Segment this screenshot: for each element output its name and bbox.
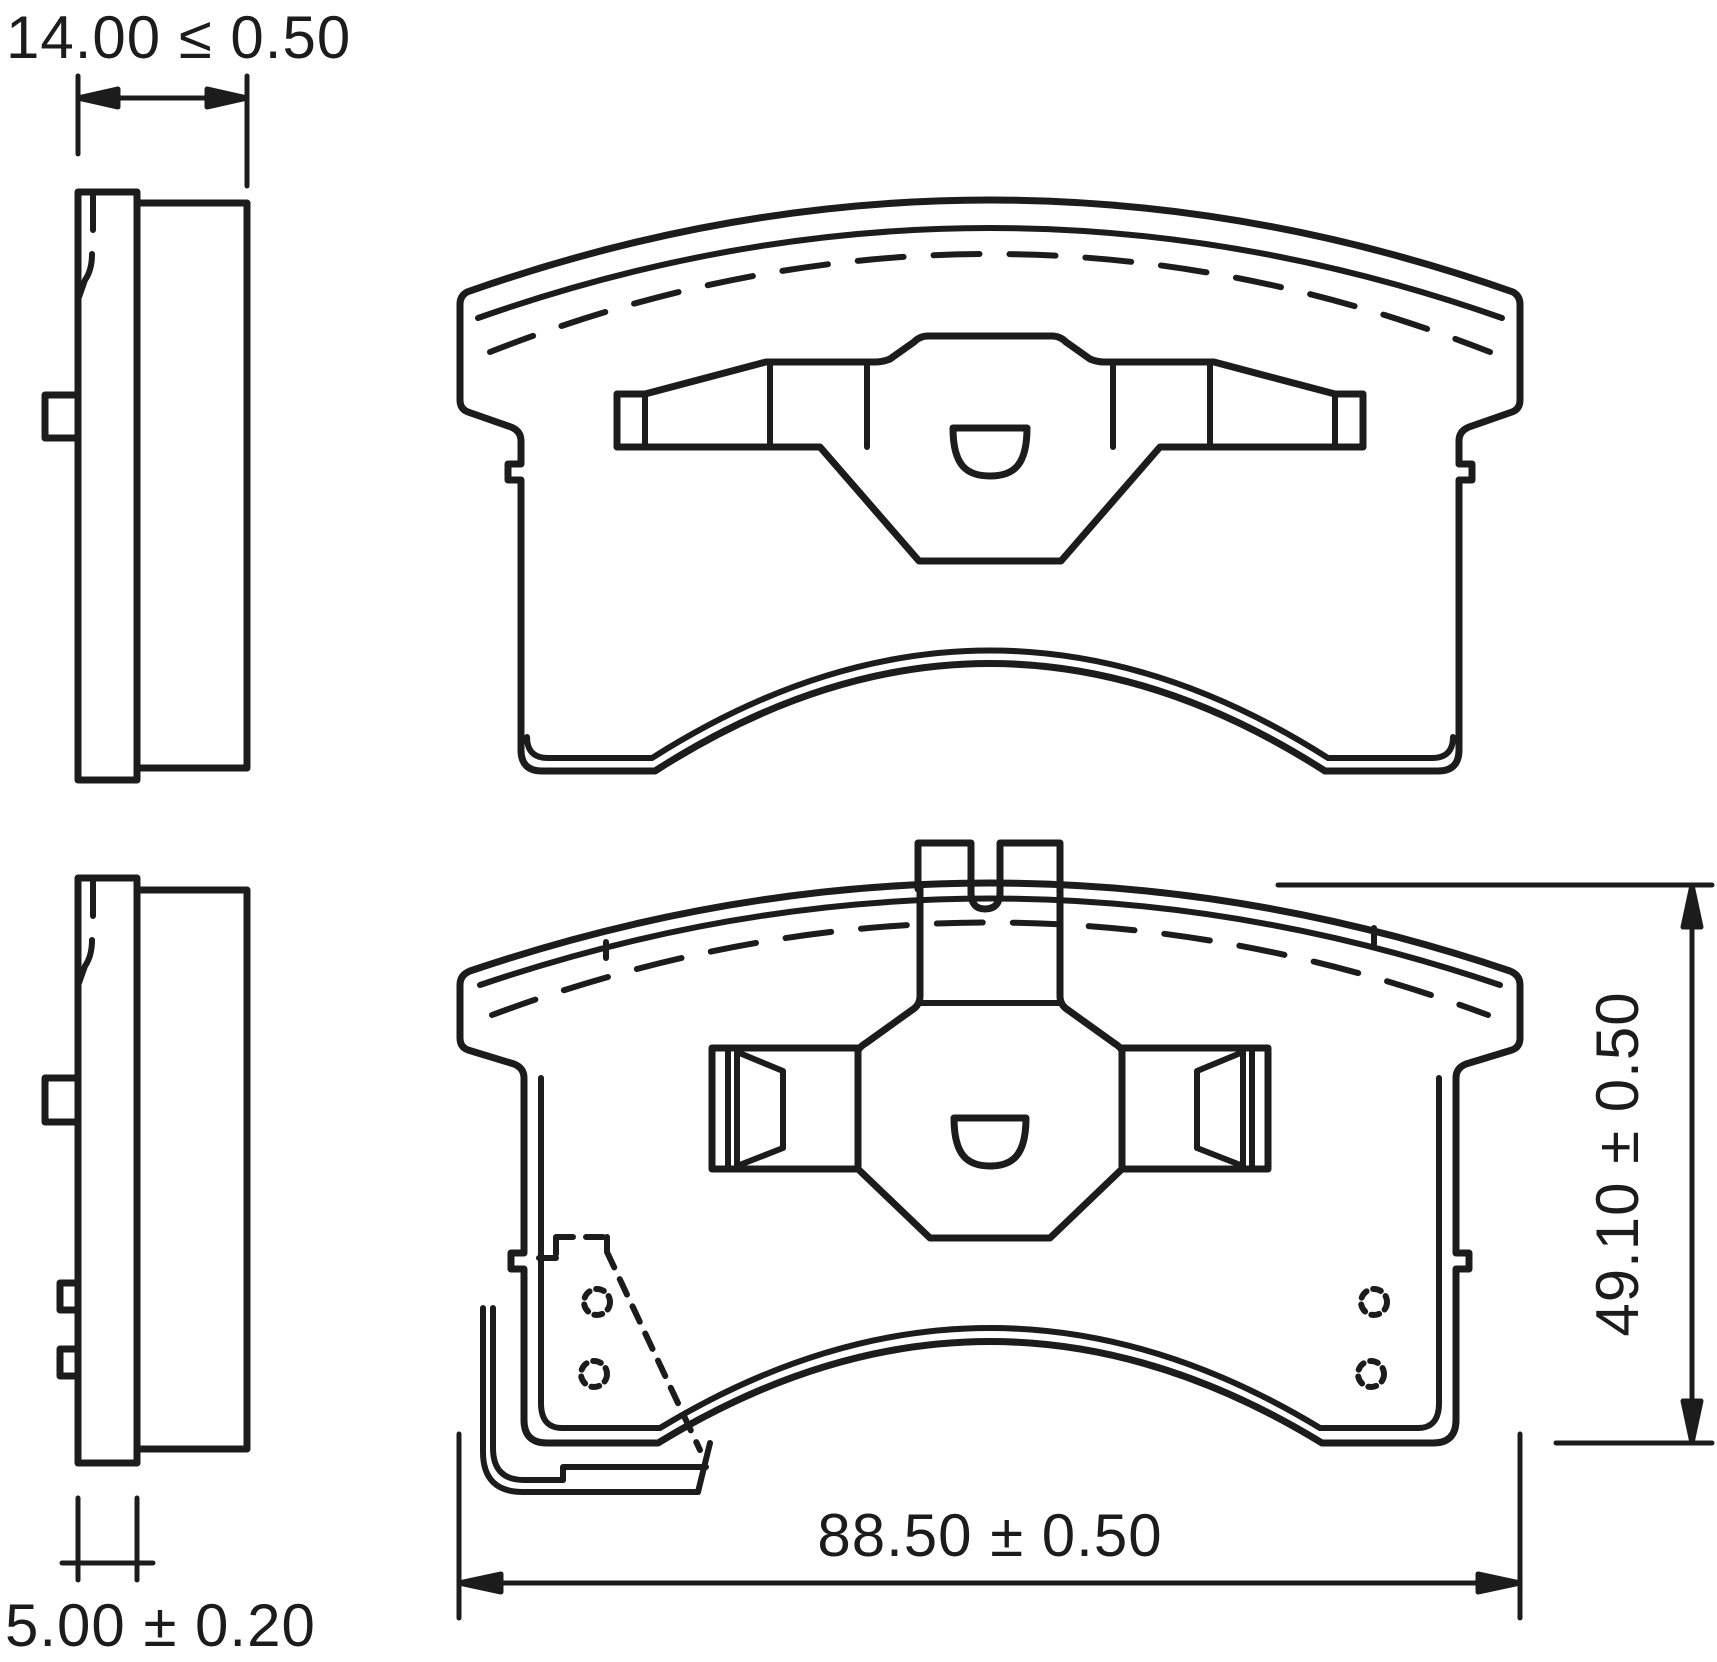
upper-back-view [460, 200, 1520, 771]
left-wing-boss [737, 1052, 783, 1166]
arrowhead-left-icon [459, 1574, 501, 1592]
shim-contour [617, 336, 1363, 561]
left-wing-edge-lines [728, 1048, 737, 1169]
technical-drawing-canvas: 14.00 ≤ 0.50 5.00 ± 0.20 88.50 ± 0.50 49… [0, 0, 1717, 1662]
clip-plate [563, 1443, 710, 1492]
friction-pad-edge [541, 1078, 1439, 1428]
center-band [1060, 889, 1122, 1052]
pad-width-label: 88.50 ± 0.50 [817, 1502, 1162, 1569]
arrowhead-down-icon [1683, 1401, 1701, 1443]
wear-indicator-clip [483, 1237, 710, 1492]
clip-inner-line [493, 1308, 563, 1480]
hidden-clip-arm [607, 1252, 700, 1450]
right-wing-edge-lines [1243, 1048, 1252, 1169]
arrowhead-up-icon [1683, 885, 1701, 927]
friction-material-section [137, 203, 247, 768]
arrowhead-right-icon [1478, 1574, 1520, 1592]
lower-shim-contour [858, 1169, 1122, 1238]
rivet-hole [584, 1289, 610, 1315]
center-hole [953, 428, 1027, 476]
guide-tab [45, 1078, 78, 1122]
backplate-thickness-label: 5.00 ± 0.20 [5, 1592, 316, 1659]
hidden-clip-outline [534, 1237, 607, 1258]
lower-friction-view [460, 843, 1520, 1492]
arrowhead-right-icon [207, 89, 247, 107]
center-hole [954, 1118, 1026, 1166]
center-band [858, 889, 920, 1052]
arrowhead-left-icon [78, 89, 118, 107]
rivet-hole [581, 1361, 607, 1387]
lower-side-view [45, 878, 247, 1463]
dimension-backplate-thickness [62, 1498, 153, 1580]
drawing-root [45, 76, 1712, 1618]
rivet-hole [1358, 1361, 1384, 1387]
pad-height-label: 49.10 ± 0.50 [1584, 991, 1651, 1336]
right-wing-boss [1197, 1052, 1243, 1166]
dimension-pad-thickness [78, 76, 247, 186]
pad-thickness-label: 14.00 ≤ 0.50 [6, 4, 351, 71]
rivet-tab [60, 1349, 78, 1376]
guide-tab [45, 395, 78, 438]
friction-material-section [137, 890, 247, 1449]
plate-outline [460, 200, 1520, 771]
upper-side-view [45, 192, 247, 780]
rivet-hole [1361, 1289, 1387, 1315]
rivet-tab [60, 1283, 78, 1310]
